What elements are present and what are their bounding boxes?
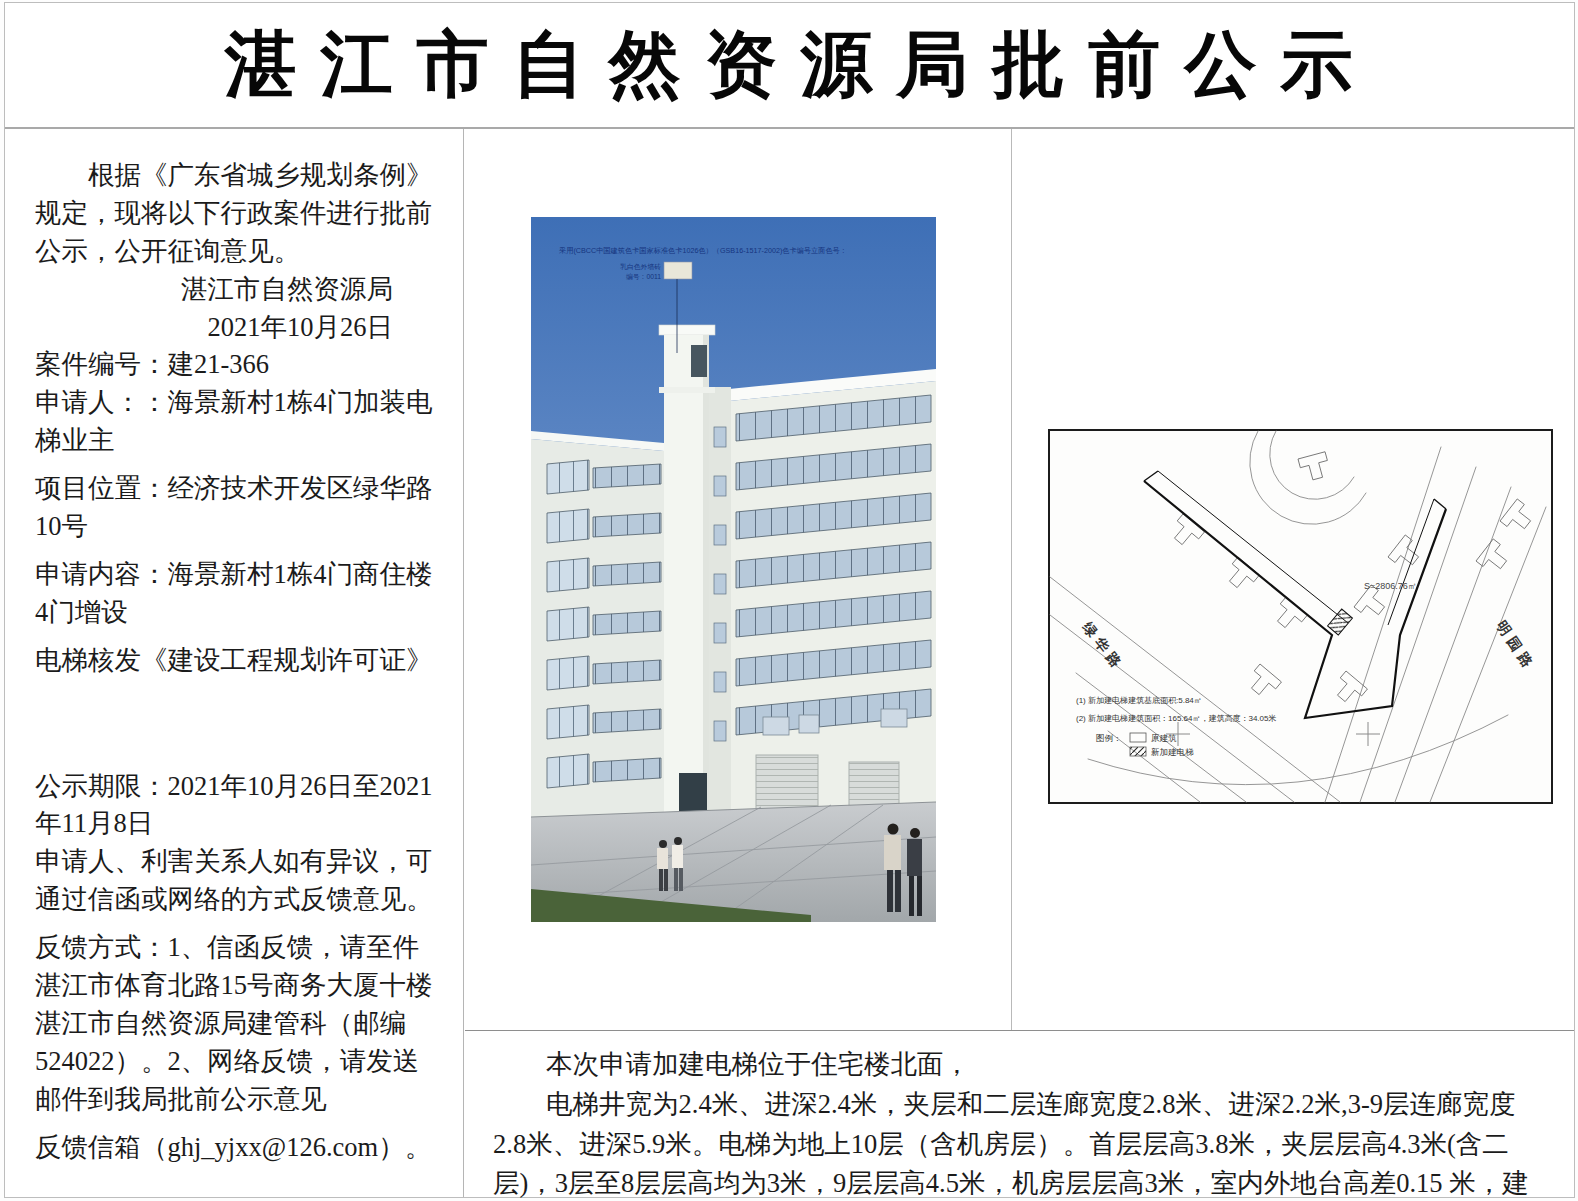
color-swatch <box>664 262 692 279</box>
bottom-line-1: 本次申请加建电梯位于住宅楼北面， <box>493 1045 1540 1085</box>
rendering-column: 采用(CBCC中国建筑色卡国家标准色卡1026色）（GSB16-1517-200… <box>465 129 1012 1030</box>
notice-sheet: 湛 江 市 自 然 资 源 局 批 前 公 示 根据《广东省城乡规划条例》规定，… <box>0 0 1578 1201</box>
content-line-2: 电梯核发《建设工程规划许可证》 <box>35 642 437 680</box>
notice-date: 2021年10月26日 <box>35 309 437 347</box>
swatch-label-2: 编号：0011 <box>626 273 661 280</box>
left-wing <box>531 431 664 825</box>
site-plan: 绿华路 明园路 S=2806.76㎡ (1) 新加建电梯建筑基底面积:5.84㎡… <box>1048 429 1553 804</box>
legend-new-symbol <box>1130 747 1146 756</box>
roller-door <box>756 755 818 813</box>
siteplan-column: 绿华路 明园路 S=2806.76㎡ (1) 新加建电梯建筑基底面积:5.84㎡… <box>1012 129 1574 1030</box>
swatch-label-1: 乳白色外墙砖 <box>620 263 661 271</box>
color-note: 采用(CBCC中国建筑色卡国家标准色卡1026色）（GSB16-1517-200… <box>559 246 847 255</box>
area-label: S=2806.76㎡ <box>1364 581 1417 591</box>
objection-line: 申请人、利害关系人如有异议，可通过信函或网络的方式反馈意见。 <box>35 843 437 919</box>
location-line: 项目位置：经济技术开发区绿华路10号 <box>35 470 437 546</box>
legend-new-label: 新加建电梯 <box>1151 747 1194 757</box>
bottom-body: 电梯井宽为2.4米、进深2.4米，夹层和二层连廊宽度2.8米、进深2.2米,3-… <box>493 1085 1540 1201</box>
elevator-tower <box>659 325 731 817</box>
agency-name: 湛江市自然资源局 <box>35 271 437 309</box>
bottom-description: 本次申请加建电梯位于住宅楼北面， 电梯井宽为2.4米、进深2.4米，夹层和二层连… <box>465 1030 1574 1197</box>
feedback-method: 反馈方式：1、信函反馈，请至件湛江市体育北路15号商务大厦十楼湛江市自然资源局建… <box>35 929 437 1118</box>
building-rendering: 采用(CBCC中国建筑色卡国家标准色卡1026色）（GSB16-1517-200… <box>531 217 936 922</box>
right-wing <box>729 369 936 817</box>
intro-paragraph: 根据《广东省城乡规划条例》规定，现将以下行政案件进行批前公示，公开征询意见。 <box>35 157 437 271</box>
publicity-period: 公示期限：2021年10月26日至2021年11月8日 <box>35 768 437 844</box>
title-band: 湛 江 市 自 然 资 源 局 批 前 公 示 <box>5 3 1574 129</box>
left-panel: 根据《广东省城乡规划条例》规定，现将以下行政案件进行批前公示，公开征询意见。 湛… <box>5 129 464 1197</box>
page-frame: 湛 江 市 自 然 资 源 局 批 前 公 示 根据《广东省城乡规划条例》规定，… <box>4 2 1575 1198</box>
feedback-email: 反馈信箱（ghj_yjxx@126.com）。 <box>35 1129 437 1167</box>
legend-title: 图例： <box>1096 733 1122 743</box>
page-title: 湛 江 市 自 然 资 源 局 批 前 公 示 <box>224 17 1354 113</box>
content-line-1: 申请内容：海景新村1栋4门商住楼4门增设 <box>35 556 437 632</box>
case-number: 案件编号：建21-366 <box>35 346 437 384</box>
plaza-ground <box>531 802 936 922</box>
applicant-line: 申请人：：海景新村1栋4门加装电梯业主 <box>35 384 437 460</box>
legend-line-1: (1) 新加建电梯建筑基底面积:5.84㎡ <box>1076 696 1202 705</box>
legend-existing-label: 原建筑 <box>1151 733 1177 743</box>
legend-line-2: (2) 新加建电梯建筑面积：165.64㎡，建筑高度：34.05米 <box>1076 714 1277 723</box>
